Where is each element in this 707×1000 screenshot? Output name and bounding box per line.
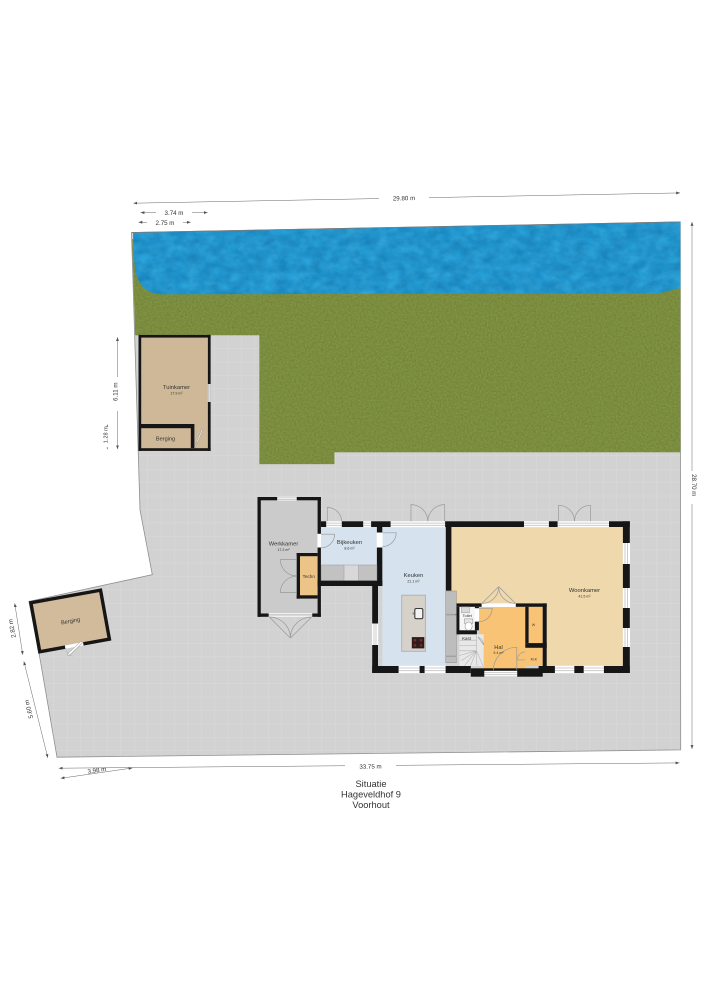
svg-text:Keuken: Keuken [404,573,424,579]
svg-text:3.74 m: 3.74 m [165,210,184,217]
svg-text:M.K: M.K [531,657,538,661]
svg-text:28.70 m: 28.70 m [690,474,697,496]
svg-text:2.75 m: 2.75 m [156,220,175,227]
svg-text:Hageveldhof 9: Hageveldhof 9 [341,790,401,800]
svg-text:Bijkeuken: Bijkeuken [337,540,362,546]
svg-text:Woonkamer: Woonkamer [569,588,600,594]
svg-text:Hal: Hal [494,645,502,651]
svg-text:Voorhout: Voorhout [352,800,390,810]
svg-text:Situatie: Situatie [355,779,386,789]
svg-text:Werkkamer: Werkkamer [269,541,299,547]
svg-text:17.9 m²: 17.9 m² [170,391,183,395]
svg-text:33.75 m: 33.75 m [359,764,381,771]
svg-text:41.5 m²: 41.5 m² [578,594,591,598]
svg-text:K: K [531,624,536,627]
svg-text:17.2 m²: 17.2 m² [277,548,290,552]
svg-text:9.4 m²: 9.4 m² [493,651,504,655]
svg-text:1.28 m: 1.28 m [103,426,109,443]
svg-text:Kast: Kast [462,636,472,641]
svg-text:Tuinkamer: Tuinkamer [163,385,190,391]
svg-text:Techn: Techn [303,574,316,579]
svg-text:Berging: Berging [156,436,175,442]
svg-text:6.11 m: 6.11 m [113,382,120,400]
svg-text:8.6 m²: 8.6 m² [344,546,355,550]
svg-text:29.80 m: 29.80 m [393,195,415,202]
svg-text:Toilet: Toilet [463,613,473,618]
svg-text:21.1 m²: 21.1 m² [407,579,420,583]
